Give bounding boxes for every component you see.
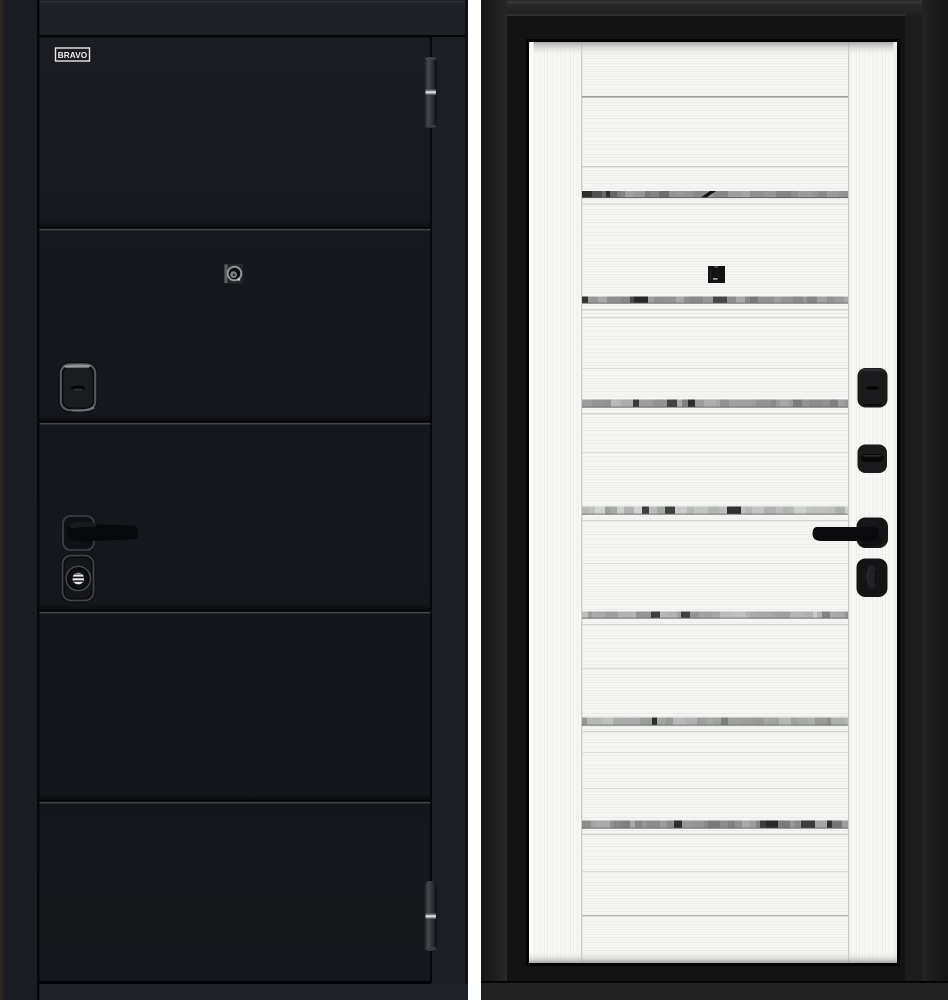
svg-text:BRAVO: BRAVO (58, 51, 88, 60)
